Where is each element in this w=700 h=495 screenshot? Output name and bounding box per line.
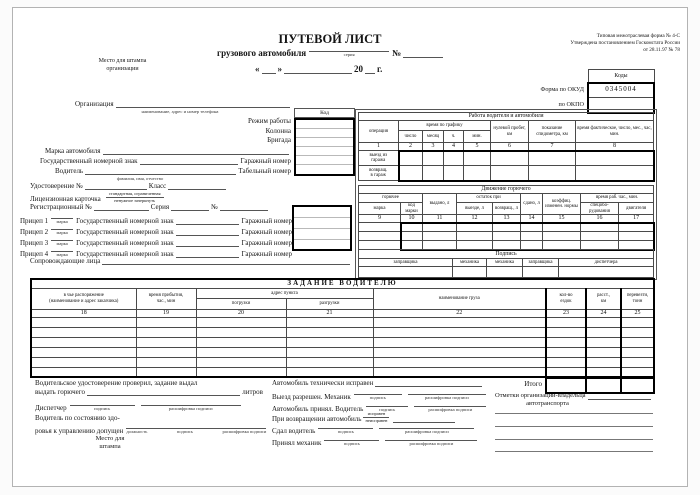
fuel-issue-blank xyxy=(87,388,240,396)
kod-row xyxy=(294,240,350,250)
empty-cell xyxy=(423,232,457,241)
kod-row xyxy=(296,120,353,129)
table-row xyxy=(359,223,654,232)
organization-blank xyxy=(116,100,290,108)
empty-cell xyxy=(493,232,521,241)
kod-row xyxy=(294,207,350,218)
kod-row xyxy=(294,218,350,229)
brand-blank xyxy=(103,147,289,155)
kod-row xyxy=(296,129,353,138)
dispatcher-row: Диспетчер подпись расшифровка подписи xyxy=(35,399,270,412)
stamp-line2: организации xyxy=(60,66,185,74)
kod-row xyxy=(296,165,353,173)
organization-hint: наименование, адрес и номер телефона xyxy=(95,109,265,115)
owner-notes-row: Отметки организации-владельца xyxy=(495,392,653,400)
col-trips: кол-воездок xyxy=(546,288,586,309)
empty-cell xyxy=(373,337,546,347)
form-note-line2: Утверждена постановлением Госкомстата Ро… xyxy=(440,40,680,47)
column-numbers-row: 12 34 56 78 xyxy=(359,143,654,151)
kod-row xyxy=(296,147,353,156)
table-row: операция время по графику нулевой пробег… xyxy=(359,121,654,131)
notes-line xyxy=(495,426,653,427)
certificate-blank xyxy=(85,182,147,190)
empty-cell: 2 xyxy=(399,143,423,151)
table-row: ЗАДАНИЕ ВОДИТЕЛЮ xyxy=(31,279,654,288)
empty-cell: 21 xyxy=(286,309,373,317)
col-arrival: время прибытия,час., мин xyxy=(136,288,196,309)
brand-row: Марка автомобиля xyxy=(45,147,291,155)
empty-cell: 19 xyxy=(136,309,196,317)
reg-no-blank xyxy=(220,203,268,211)
col-zero-run: нулевой пробег, км xyxy=(491,121,529,143)
empty-cell xyxy=(487,267,523,278)
table-row xyxy=(31,347,654,357)
dispatcher-sign: подпись xyxy=(70,399,135,412)
fuel-issue-label: выдать горючего xyxy=(35,388,85,396)
empty-cell xyxy=(621,337,654,347)
empty-cell xyxy=(423,151,444,166)
trailer-row-4: Прицеп 4 марка Государственный номерной … xyxy=(20,245,292,258)
col-brand: марка xyxy=(359,203,401,215)
empty-cell: 23 xyxy=(546,309,586,317)
owner-notes-blank xyxy=(588,392,651,400)
form-note-line1: Типовая межотраслевая форма № 4-С xyxy=(440,33,680,40)
kod-row xyxy=(296,138,353,147)
stamp-place-line1: Место для xyxy=(70,435,150,443)
table-row xyxy=(546,378,654,393)
empty-cell: 22 xyxy=(373,309,546,317)
kod-row xyxy=(294,229,350,240)
col-unloading: разгрузки xyxy=(286,298,373,309)
quote-close: » xyxy=(278,64,283,74)
brigade-label: Бригада xyxy=(190,136,291,146)
empty-cell xyxy=(523,267,559,278)
empty-cell xyxy=(621,357,654,367)
empty-cell xyxy=(586,357,621,367)
empty-cell xyxy=(196,337,286,347)
received-row: Принял механик подпись расшифровка подпи… xyxy=(272,434,484,447)
depart-label: выезд изгаража xyxy=(359,151,399,166)
col-month: месяц xyxy=(423,131,444,143)
empty-cell xyxy=(543,232,581,241)
okud-value: 0345004 xyxy=(588,83,654,98)
dispatcher-sign-decode: расшифровка подписи xyxy=(141,399,241,412)
table-row xyxy=(31,337,654,347)
col-fuel: горючее xyxy=(359,194,423,203)
plate-label: Государственный номерной знак xyxy=(40,157,138,165)
empty-cell xyxy=(521,223,543,232)
empty-cell xyxy=(543,223,581,232)
empty-cell xyxy=(286,337,373,347)
empty-cell: 13 xyxy=(493,215,521,223)
empty-cell xyxy=(493,223,521,232)
empty-cell xyxy=(196,347,286,357)
empty-cell xyxy=(559,267,654,278)
empty-cell xyxy=(576,166,654,181)
empty-cell xyxy=(196,367,286,377)
empty-cell xyxy=(457,232,493,241)
empty-cell xyxy=(546,347,586,357)
sign-dispatcher: диспетчера xyxy=(559,259,654,267)
col-special: спецобо- рудования xyxy=(581,203,619,215)
work-mode-label: Режим работы xyxy=(190,117,291,127)
empty-cell xyxy=(576,151,654,166)
total-distance-cell xyxy=(586,378,621,393)
empty-cell xyxy=(359,267,453,278)
subtitle-label: грузового автомобиля xyxy=(217,48,306,58)
sign-fueler2: заправщика xyxy=(523,259,559,267)
okud-label: Форма по ОКУД xyxy=(490,86,584,93)
escort-blank xyxy=(102,257,350,265)
col-customer: в чье распоряжение(наименование и адрес … xyxy=(31,288,136,309)
series-blank: серия xyxy=(309,45,389,58)
notes-line xyxy=(495,451,653,452)
empty-cell xyxy=(546,327,586,337)
okpo-label: по ОКПО xyxy=(490,101,584,108)
registration-blank xyxy=(94,203,149,211)
empty-cell xyxy=(546,317,586,327)
total-tons-cell xyxy=(621,378,654,393)
unit-labels: Режим работы Колонна Бригада xyxy=(190,117,291,146)
license-card-label: Лицензионная карточка xyxy=(30,195,101,203)
fuel-title: Движение горючего xyxy=(359,186,654,194)
empty-cell xyxy=(621,347,654,357)
empty-cell: 3 xyxy=(423,143,444,151)
table-row: Движение горючего xyxy=(359,186,654,194)
table-row xyxy=(31,357,654,367)
empty-cell xyxy=(359,232,401,241)
received-sign-decode: расшифровка подписи xyxy=(385,434,477,447)
empty-cell xyxy=(136,357,196,367)
stamp-place: Место для штампа xyxy=(70,435,150,451)
empty-cell: 10 xyxy=(401,215,423,223)
col-depart: выезде, л xyxy=(457,203,493,215)
empty-cell xyxy=(619,223,654,232)
dispatcher-label: Диспетчер xyxy=(35,404,67,412)
mechanic-sign: подпись xyxy=(354,388,402,401)
empty-cell xyxy=(136,347,196,357)
table-row: Коды xyxy=(588,70,654,83)
license-card-hints: стандартная, ограниченная ненужное зачер… xyxy=(106,191,164,203)
license-card-row: Лицензионная карточка стандартная, огран… xyxy=(30,191,240,203)
col-issued: выдано, л xyxy=(423,194,457,215)
empty-cell: 14 xyxy=(521,215,543,223)
empty-cell xyxy=(529,151,576,166)
kod-header: Код xyxy=(294,108,355,118)
signatures-table: Подпись заправщика механика механика зап… xyxy=(358,249,654,278)
empty-cell: 4 xyxy=(444,143,464,151)
col-minute: мин. xyxy=(464,131,491,143)
series-blank2 xyxy=(171,203,209,211)
driver-blank xyxy=(85,167,236,175)
empty-cell xyxy=(464,151,491,166)
year-blank xyxy=(365,66,375,74)
table-row xyxy=(359,232,654,241)
empty-cell xyxy=(546,357,586,367)
empty-cell xyxy=(373,357,546,367)
col-hour: ч. xyxy=(444,131,464,143)
empty-cell xyxy=(491,166,529,181)
codes-header: Коды xyxy=(588,70,654,83)
day-blank xyxy=(262,66,276,74)
column-label: Колонна xyxy=(190,127,291,137)
empty-cell: 24 xyxy=(586,309,621,317)
series-hint: серия xyxy=(344,52,355,58)
work-title: Работа водителя и автомобиля xyxy=(359,113,654,121)
depart-allowed-row: Выезд разрешен. Механик подпись расшифро… xyxy=(272,388,484,401)
empty-cell xyxy=(136,337,196,347)
column-numbers-row: 1819 2021 2223 2425 xyxy=(31,309,654,317)
health-text2: ровья к управлению допущен xyxy=(35,427,123,435)
empty-cell xyxy=(286,317,373,327)
empty-cell xyxy=(621,327,654,337)
year-suffix: г. xyxy=(377,64,382,74)
form-note: Типовая межотраслевая форма № 4-С Утверж… xyxy=(440,33,680,53)
empty-cell xyxy=(581,232,619,241)
empty-cell xyxy=(586,367,621,377)
col-cargo: наименование груза xyxy=(373,288,546,309)
col-remain: остаток при xyxy=(457,194,521,203)
empty-cell xyxy=(581,223,619,232)
fuel-table: Движение горючего горючее выдано, л оста… xyxy=(358,185,655,251)
liters-label: литров xyxy=(242,388,263,396)
stamp-area: Место для штампа организации xyxy=(60,58,185,73)
column-numbers-row: 910 1112 1314 1516 17 xyxy=(359,215,654,223)
return-label: возвращ.в гараж xyxy=(359,166,399,181)
signature-title: Подпись xyxy=(359,250,654,259)
codes-table: Коды 0345004 xyxy=(587,69,655,114)
empty-cell xyxy=(286,327,373,337)
class-label: Класс xyxy=(149,182,166,190)
driver-hint: фамилия, имя, отчество xyxy=(80,176,200,182)
empty-cell: 12 xyxy=(457,215,493,223)
plate-row: Государственный номерной знак Гаражный н… xyxy=(40,157,291,165)
empty-cell: 16 xyxy=(581,215,619,223)
fuel-issue-row: выдать горючего литров xyxy=(35,388,263,396)
empty-cell xyxy=(401,223,423,232)
garage-number-label: Гаражный номер xyxy=(240,157,291,165)
return-row: возвращ.в гараж xyxy=(359,166,654,181)
empty-cell xyxy=(423,166,444,181)
empty-cell: 11 xyxy=(423,215,457,223)
empty-cell xyxy=(423,223,457,232)
table-row: Подпись xyxy=(359,250,654,259)
driver-row: Водитель Табельный номер xyxy=(55,167,291,175)
empty-cell xyxy=(196,317,286,327)
empty-cell xyxy=(546,337,586,347)
empty-cell xyxy=(373,327,546,337)
month-blank xyxy=(284,66,352,74)
table-row: в чье распоряжение(наименование и адрес … xyxy=(31,288,654,298)
empty-cell xyxy=(136,317,196,327)
escort-row: Сопровождающие лица xyxy=(30,257,352,265)
col-engine: двигателя xyxy=(619,203,654,215)
empty-cell xyxy=(31,367,136,377)
mechanic-sign-decode: расшифровка подписи xyxy=(408,388,486,401)
received-sign: подпись xyxy=(324,434,379,447)
table-row xyxy=(31,317,654,327)
table-row: марка код марки выезде, л возвращ., л сп… xyxy=(359,203,654,215)
empty-cell: 18 xyxy=(31,309,136,317)
series-label: Серия xyxy=(151,203,169,211)
col-return: возвращ., л xyxy=(493,203,521,215)
empty-cell xyxy=(586,347,621,357)
registration-row: Регистрационный № Серия № xyxy=(30,203,285,211)
col-operation: операция xyxy=(359,121,399,143)
empty-cell: 6 xyxy=(491,143,529,151)
task-table: ЗАДАНИЕ ВОДИТЕЛЮ в чье распоряжение(наим… xyxy=(30,278,655,378)
notes-line xyxy=(495,413,653,414)
organization-row: Организация xyxy=(75,100,292,108)
empty-cell xyxy=(401,232,423,241)
col-day: число xyxy=(399,131,423,143)
year-prefix: 20 xyxy=(354,64,363,74)
registration-label: Регистрационный № xyxy=(30,203,92,211)
sign-mechanic2: механика xyxy=(487,259,523,267)
empty-cell xyxy=(136,367,196,377)
trailer-brand-blank: марка xyxy=(51,245,73,258)
empty-cell xyxy=(359,223,401,232)
total-label: Итого xyxy=(505,380,542,388)
series-line xyxy=(309,45,389,52)
table-row: горючее выдано, л остаток при сдано, л к… xyxy=(359,194,654,203)
kod-row xyxy=(296,156,353,165)
organization-label: Организация xyxy=(75,100,114,108)
received-label: Принял механик xyxy=(272,439,321,447)
empty-cell xyxy=(196,327,286,337)
number-blank xyxy=(403,50,443,58)
task-title: ЗАДАНИЕ ВОДИТЕЛЮ xyxy=(31,279,654,288)
empty-cell xyxy=(546,367,586,377)
table-row: 0345004 xyxy=(588,83,654,98)
plate-blank xyxy=(140,157,239,165)
empty-cell xyxy=(444,166,464,181)
sign-fueler: заправщика xyxy=(359,259,453,267)
empty-cell xyxy=(457,223,493,232)
empty-cell xyxy=(521,232,543,241)
empty-cell xyxy=(373,347,546,357)
sign-mechanic1: механика xyxy=(453,259,487,267)
col-actual-time: время фактическое, число, мес., час, мин… xyxy=(576,121,654,143)
empty-cell xyxy=(586,337,621,347)
empty-cell xyxy=(586,317,621,327)
trailer-kod-box xyxy=(292,205,352,251)
col-coeff: коэффиц. изменен. нормы xyxy=(543,194,581,215)
empty-cell xyxy=(31,327,136,337)
table-row: заправщика механика механика заправщика … xyxy=(359,259,654,267)
col-odometer: показание спидометра, км xyxy=(529,121,576,143)
empty-cell: 7 xyxy=(529,143,576,151)
empty-cell xyxy=(586,327,621,337)
number-sign: № xyxy=(392,48,401,58)
form-subtitle-row: грузового автомобиля серия № xyxy=(217,45,445,58)
tech-ok-label: Автомобиль технически исправен xyxy=(272,379,373,387)
empty-cell xyxy=(453,267,487,278)
empty-cell xyxy=(444,151,464,166)
empty-cell: 9 xyxy=(359,215,401,223)
reg-no-label: № xyxy=(211,203,218,211)
certificate-label: Удостоверение № xyxy=(30,182,83,190)
empty-cell xyxy=(619,232,654,241)
empty-cell: 25 xyxy=(621,309,654,317)
tech-ok-row: Автомобиль технически исправен xyxy=(272,379,484,387)
col-brand-code: код марки xyxy=(401,203,423,215)
empty-cell xyxy=(286,357,373,367)
empty-cell xyxy=(196,357,286,367)
empty-cell xyxy=(464,166,491,181)
empty-cell: 1 xyxy=(359,143,399,151)
owner-notes-label: Отметки организации-владельца xyxy=(495,392,586,400)
empty-cell xyxy=(31,347,136,357)
health-sign: должность подпись расшифровка подписи xyxy=(126,422,266,435)
certificate-row: Удостоверение № Класс xyxy=(30,182,265,190)
handed-sign-decode: расшифровка подписи xyxy=(379,422,474,435)
empty-cell: 20 xyxy=(196,309,286,317)
col-handed: сдано, л xyxy=(521,194,543,215)
empty-cell xyxy=(491,151,529,166)
empty-cell: 8 xyxy=(576,143,654,151)
stamp-line1: Место для штампа xyxy=(60,58,185,66)
empty-cell xyxy=(136,327,196,337)
empty-cell xyxy=(31,337,136,347)
empty-cell: 17 xyxy=(619,215,654,223)
col-worktime: время раб. час., мин. xyxy=(581,194,654,203)
col-address: адрес пункта xyxy=(196,288,373,298)
table-row xyxy=(31,327,654,337)
date-row: « » 20 г. xyxy=(255,64,400,74)
quote-open: « xyxy=(255,64,260,74)
empty-cell xyxy=(529,166,576,181)
empty-cell xyxy=(399,151,423,166)
col-loading: погрузки xyxy=(196,298,286,309)
brand-label: Марка автомобиля xyxy=(45,147,101,155)
table-row xyxy=(31,367,654,377)
license-checked-text: Водительское удостоверение проверил, зад… xyxy=(35,379,197,387)
class-blank xyxy=(168,182,226,190)
handed-row: Сдал водитель подпись расшифровка подпис… xyxy=(272,422,484,435)
empty-cell xyxy=(373,317,546,327)
col-schedule: время по графику xyxy=(399,121,491,131)
col-tons: перевезти,тонн xyxy=(621,288,654,309)
total-trips-cell xyxy=(546,378,586,393)
escort-label: Сопровождающие лица xyxy=(30,257,100,265)
empty-cell xyxy=(621,367,654,377)
empty-cell xyxy=(399,166,423,181)
empty-cell xyxy=(31,317,136,327)
empty-cell xyxy=(286,367,373,377)
tab-number-label: Табельный номер xyxy=(238,167,291,175)
col-distance: расст.,км xyxy=(586,288,621,309)
kod-box xyxy=(294,118,355,176)
handed-sign: подпись xyxy=(318,422,373,435)
empty-cell xyxy=(621,317,654,327)
depart-row: выезд изгаража xyxy=(359,151,654,166)
driver-label: Водитель xyxy=(55,167,83,175)
empty-cell xyxy=(373,367,546,377)
form-note-line3: от 28.11.97 № 78 xyxy=(440,47,680,54)
table-row: Работа водителя и автомобиля xyxy=(359,113,654,121)
work-table: Работа водителя и автомобиля операция вр… xyxy=(358,112,655,182)
owner-notes-label2: автотранспорта xyxy=(500,400,595,407)
notes-line xyxy=(495,439,653,440)
table-row xyxy=(359,267,654,278)
empty-cell: 15 xyxy=(543,215,581,223)
empty-cell: 5 xyxy=(464,143,491,151)
health-row: ровья к управлению допущен должность под… xyxy=(35,422,280,435)
empty-cell xyxy=(286,347,373,357)
tech-ok-blank xyxy=(375,379,482,387)
empty-cell xyxy=(31,357,136,367)
